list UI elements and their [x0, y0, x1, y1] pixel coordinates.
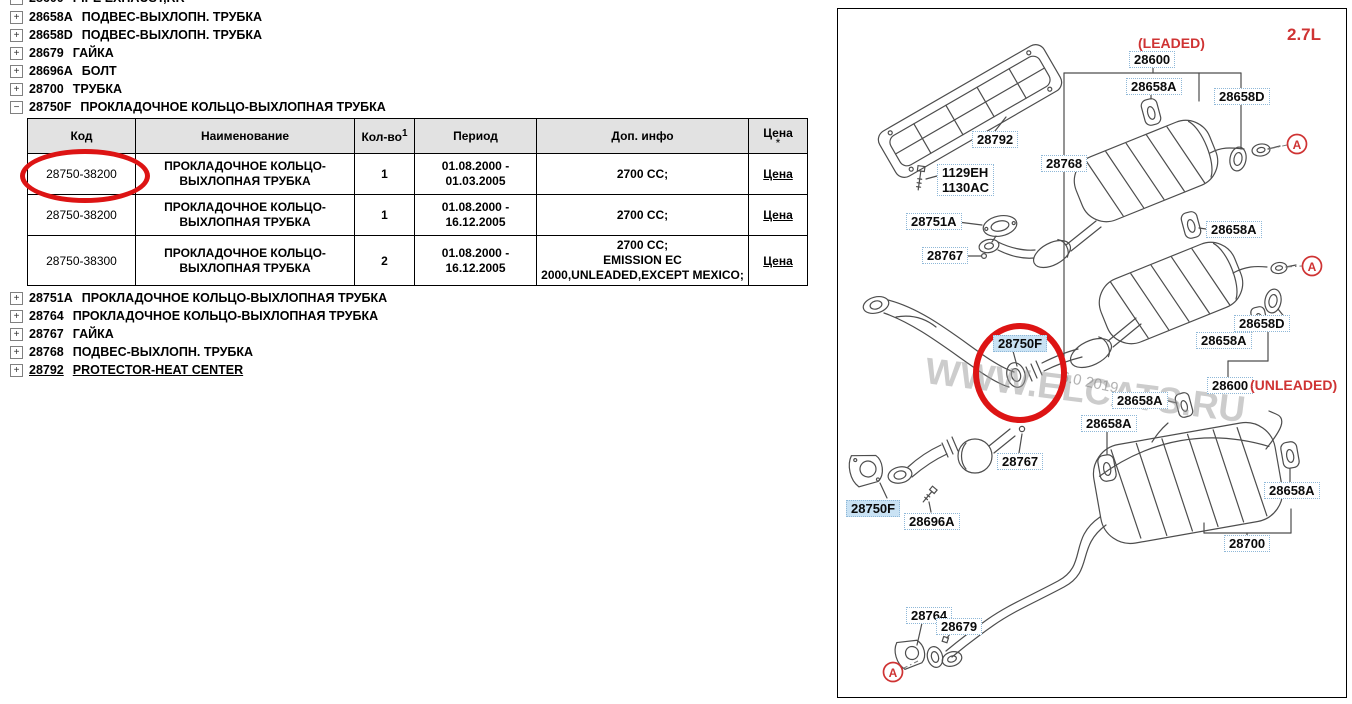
part-code: 28696A	[29, 64, 73, 78]
tree-item-28696A[interactable]: + 28696A БОЛТ	[10, 62, 117, 80]
cell-period: 01.08.2000 - 01.03.2005	[415, 154, 537, 195]
expand-plus-icon[interactable]: +	[10, 65, 23, 78]
table-row: 28750-38200 ПРОКЛАДОЧНОЕ КОЛЬЦО- ВЫХЛОПН…	[28, 154, 808, 195]
part-code: 28792	[29, 363, 64, 377]
part-name: ПОДВЕС-ВЫХЛОПН. ТРУБКА	[82, 10, 262, 24]
col-header-price: Цена *	[749, 119, 808, 154]
part-label-28750F-highlighted[interactable]: 28750F	[993, 335, 1047, 352]
part-label-28658A[interactable]: 28658A	[1126, 78, 1182, 95]
info-line: 2700 CC;	[540, 238, 745, 253]
svg-text:A: A	[1293, 138, 1302, 152]
name-line: ПРОКЛАДОЧНОЕ КОЛЬЦО-	[139, 159, 351, 174]
expand-plus-icon[interactable]: +	[10, 0, 23, 5]
part-code: 28658A	[29, 10, 73, 24]
info-line: 2000,UNLEADED,EXCEPT MEXICO;	[540, 268, 745, 283]
heat-shield-art	[875, 41, 1066, 181]
part-label-28679[interactable]: 28679	[936, 618, 982, 635]
tree-item-28700[interactable]: + 28700 ТРУБКА	[10, 80, 122, 98]
part-label-line: 1129EH	[942, 165, 989, 180]
tree-item-28767[interactable]: + 28767 ГАЙКА	[10, 325, 114, 343]
col-header-info: Доп. инфо	[537, 119, 749, 154]
name-line: ВЫХЛОПНАЯ ТРУБКА	[139, 215, 351, 230]
expand-plus-icon[interactable]: +	[10, 292, 23, 305]
part-code: 28658D	[29, 28, 73, 42]
part-label-28658A[interactable]: 28658A	[1081, 415, 1137, 432]
info-line: 2700 CC;	[540, 167, 745, 182]
tree-item-28679[interactable]: + 28679 ГАЙКА	[10, 44, 114, 62]
part-name: ТРУБКА	[73, 82, 122, 96]
cell-name: ПРОКЛАДОЧНОЕ КОЛЬЦО- ВЫХЛОПНАЯ ТРУБКА	[136, 236, 355, 286]
part-name: ПРОКЛАДОЧНОЕ КОЛЬЦО-ВЫХЛОПНАЯ ТРУБКА	[82, 291, 387, 305]
cell-code: 28750-38300	[28, 236, 136, 286]
name-line: ПРОКЛАДОЧНОЕ КОЛЬЦО-	[139, 246, 351, 261]
cell-period: 01.08.2000 - 16.12.2005	[415, 236, 537, 286]
cell-qty: 2	[355, 236, 415, 286]
part-name: ПРОКЛАДОЧНОЕ КОЛЬЦО-ВЫХЛОПНАЯ ТРУБКА	[73, 309, 378, 323]
period-line: 01.08.2000 -	[418, 200, 533, 215]
period-line: 16.12.2005	[418, 261, 533, 276]
cell-period: 01.08.2000 - 16.12.2005	[415, 195, 537, 236]
price-link[interactable]: Цена	[763, 254, 793, 268]
table-row: 28750-38200 ПРОКЛАДОЧНОЕ КОЛЬЦО- ВЫХЛОПН…	[28, 195, 808, 236]
svg-text:A: A	[1308, 260, 1317, 274]
part-label-line: 1130AC	[942, 180, 989, 195]
cell-price: Цена	[749, 236, 808, 286]
part-label-28658A[interactable]: 28658A	[1112, 392, 1168, 409]
cell-code: 28750-38200	[28, 154, 136, 195]
col-header-period: Период	[415, 119, 537, 154]
variant-leaded-label: (LEADED)	[1138, 36, 1205, 51]
info-line: EMISSION EC	[540, 253, 745, 268]
price-footnote: *	[752, 140, 804, 146]
svg-text:A: A	[889, 666, 898, 680]
exhaust-line-art: WWW.ELCATS.RU 6.0 2019 A A A	[838, 9, 1346, 697]
parts-catalog-page: + 28600 PIPE EXHAUST,RR + 28658A ПОДВЕС-…	[0, 0, 1352, 704]
part-label-28658A[interactable]: 28658A	[1206, 221, 1262, 238]
part-code: 28679	[29, 46, 64, 60]
part-label-28658D[interactable]: 28658D	[1234, 315, 1290, 332]
collapse-minus-icon[interactable]: −	[10, 101, 23, 114]
part-label-28700[interactable]: 28700	[1224, 535, 1270, 552]
muffler-leaded-art	[1067, 113, 1226, 230]
period-line: 01.03.2005	[418, 174, 533, 189]
name-line: ВЫХЛОПНАЯ ТРУБКА	[139, 261, 351, 276]
table-row: 28750-38300 ПРОКЛАДОЧНОЕ КОЛЬЦО- ВЫХЛОПН…	[28, 236, 808, 286]
view-marker-A-middle: A	[1303, 257, 1322, 276]
name-line: ПРОКЛАДОЧНОЕ КОЛЬЦО-	[139, 200, 351, 215]
tree-item-28658D[interactable]: + 28658D ПОДВЕС-ВЫХЛОПН. ТРУБКА	[10, 26, 262, 44]
part-label-28768[interactable]: 28768	[1041, 155, 1087, 172]
expand-plus-icon[interactable]: +	[10, 310, 23, 323]
tree-item-28750F-expanded[interactable]: − 28750F ПРОКЛАДОЧНОЕ КОЛЬЦО-ВЫХЛОПНАЯ Т…	[10, 98, 386, 116]
gasket-28750F-art	[847, 451, 885, 488]
cell-info: 2700 CC;	[537, 154, 749, 195]
col-header-qty: Кол-во1	[355, 119, 415, 154]
part-name: ПОДВЕС-ВЫХЛОПН. ТРУБКА	[73, 345, 253, 359]
part-code: 28751A	[29, 291, 73, 305]
view-marker-A-top: A	[1288, 135, 1307, 154]
part-code: 28700	[29, 82, 64, 96]
expand-plus-icon[interactable]: +	[10, 364, 23, 377]
col-header-name: Наименование	[136, 119, 355, 154]
period-line: 16.12.2005	[418, 215, 533, 230]
part-label-28792[interactable]: 28792	[972, 131, 1018, 148]
qty-footnote: 1	[402, 128, 408, 139]
cell-name: ПРОКЛАДОЧНОЕ КОЛЬЦО- ВЫХЛОПНАЯ ТРУБКА	[136, 154, 355, 195]
part-name: ГАЙКА	[73, 46, 114, 60]
period-line: 01.08.2000 -	[418, 246, 533, 261]
cell-price: Цена	[749, 195, 808, 236]
part-name: ГАЙКА	[73, 327, 114, 341]
part-label-28658A[interactable]: 28658A	[1196, 332, 1252, 349]
part-code: 28767	[29, 327, 64, 341]
part-label-1129EH-1130AC[interactable]: 1129EH 1130AC	[937, 164, 994, 196]
tree-item-28600-clipped[interactable]: + 28600 PIPE EXHAUST,RR	[10, 0, 185, 7]
tree-item-28751A[interactable]: + 28751A ПРОКЛАДОЧНОЕ КОЛЬЦО-ВЫХЛОПНАЯ Т…	[10, 289, 387, 307]
part-code: 28768	[29, 345, 64, 359]
name-line: ВЫХЛОПНАЯ ТРУБКА	[139, 174, 351, 189]
expand-plus-icon[interactable]: +	[10, 328, 23, 341]
part-label-28696A[interactable]: 28696A	[904, 513, 960, 530]
price-link[interactable]: Цена	[763, 208, 793, 222]
part-label-28658A[interactable]: 28658A	[1264, 482, 1320, 499]
cell-code: 28750-38200	[28, 195, 136, 236]
part-code: 28750F	[29, 100, 71, 114]
cell-info: 2700 CC; EMISSION EC 2000,UNLEADED,EXCEP…	[537, 236, 749, 286]
col-header-code: Код	[28, 119, 136, 154]
tree-item-28764[interactable]: + 28764 ПРОКЛАДОЧНОЕ КОЛЬЦО-ВЫХЛОПНАЯ ТР…	[10, 307, 378, 325]
part-label-28600[interactable]: 28600	[1207, 377, 1253, 394]
parts-table: Код Наименование Кол-во1 Период Доп. инф…	[27, 118, 808, 286]
part-label-28658D[interactable]: 28658D	[1214, 88, 1270, 105]
price-link[interactable]: Цена	[763, 167, 793, 181]
tree-item-28658A[interactable]: + 28658A ПОДВЕС-ВЫХЛОПН. ТРУБКА	[10, 8, 262, 26]
cell-name: ПРОКЛАДОЧНОЕ КОЛЬЦО- ВЫХЛОПНАЯ ТРУБКА	[136, 195, 355, 236]
part-name: ПРОКЛАДОЧНОЕ КОЛЬЦО-ВЫХЛОПНАЯ ТРУБКА	[80, 100, 385, 114]
tree-item-28768[interactable]: + 28768 ПОДВЕС-ВЫХЛОПН. ТРУБКА	[10, 343, 253, 361]
expand-plus-icon[interactable]: +	[10, 346, 23, 359]
exhaust-diagram-panel: WWW.ELCATS.RU 6.0 2019 A A A	[837, 8, 1347, 698]
part-name: ПОДВЕС-ВЫХЛОПН. ТРУБКА	[82, 28, 262, 42]
table-header-row: Код Наименование Кол-во1 Период Доп. инф…	[28, 119, 808, 154]
qty-label: Кол-во	[361, 130, 402, 144]
expand-plus-icon[interactable]: +	[10, 47, 23, 60]
part-label-28750F-highlighted[interactable]: 28750F	[846, 500, 900, 517]
part-label-28767[interactable]: 28767	[997, 453, 1043, 470]
part-name: PIPE EXHAUST,RR	[73, 0, 185, 5]
engine-size-label: 2.7L	[1287, 27, 1321, 42]
expand-plus-icon[interactable]: +	[10, 29, 23, 42]
gasket-art	[981, 213, 1018, 240]
part-code: 28764	[29, 309, 64, 323]
cell-qty: 1	[355, 154, 415, 195]
cell-info: 2700 CC;	[537, 195, 749, 236]
view-marker-A-bottom: A	[884, 663, 903, 682]
tree-item-28792[interactable]: + 28792 PROTECTOR-HEAT CENTER	[10, 361, 243, 379]
expand-plus-icon[interactable]: +	[10, 83, 23, 96]
cell-price: Цена	[749, 154, 808, 195]
part-name: БОЛТ	[82, 64, 117, 78]
info-line: 2700 CC;	[540, 208, 745, 223]
part-label-28767[interactable]: 28767	[922, 247, 968, 264]
period-line: 01.08.2000 -	[418, 159, 533, 174]
part-label-28751A[interactable]: 28751A	[906, 213, 962, 230]
rear-muffler-art	[1089, 418, 1288, 548]
variant-unleaded-label: (UNLEADED)	[1250, 378, 1337, 393]
part-label-28600[interactable]: 28600	[1129, 51, 1175, 68]
expand-plus-icon[interactable]: +	[10, 11, 23, 24]
part-name: PROTECTOR-HEAT CENTER	[73, 363, 243, 377]
part-code: 28600	[29, 0, 64, 5]
diagram-art	[847, 41, 1300, 671]
cell-qty: 1	[355, 195, 415, 236]
